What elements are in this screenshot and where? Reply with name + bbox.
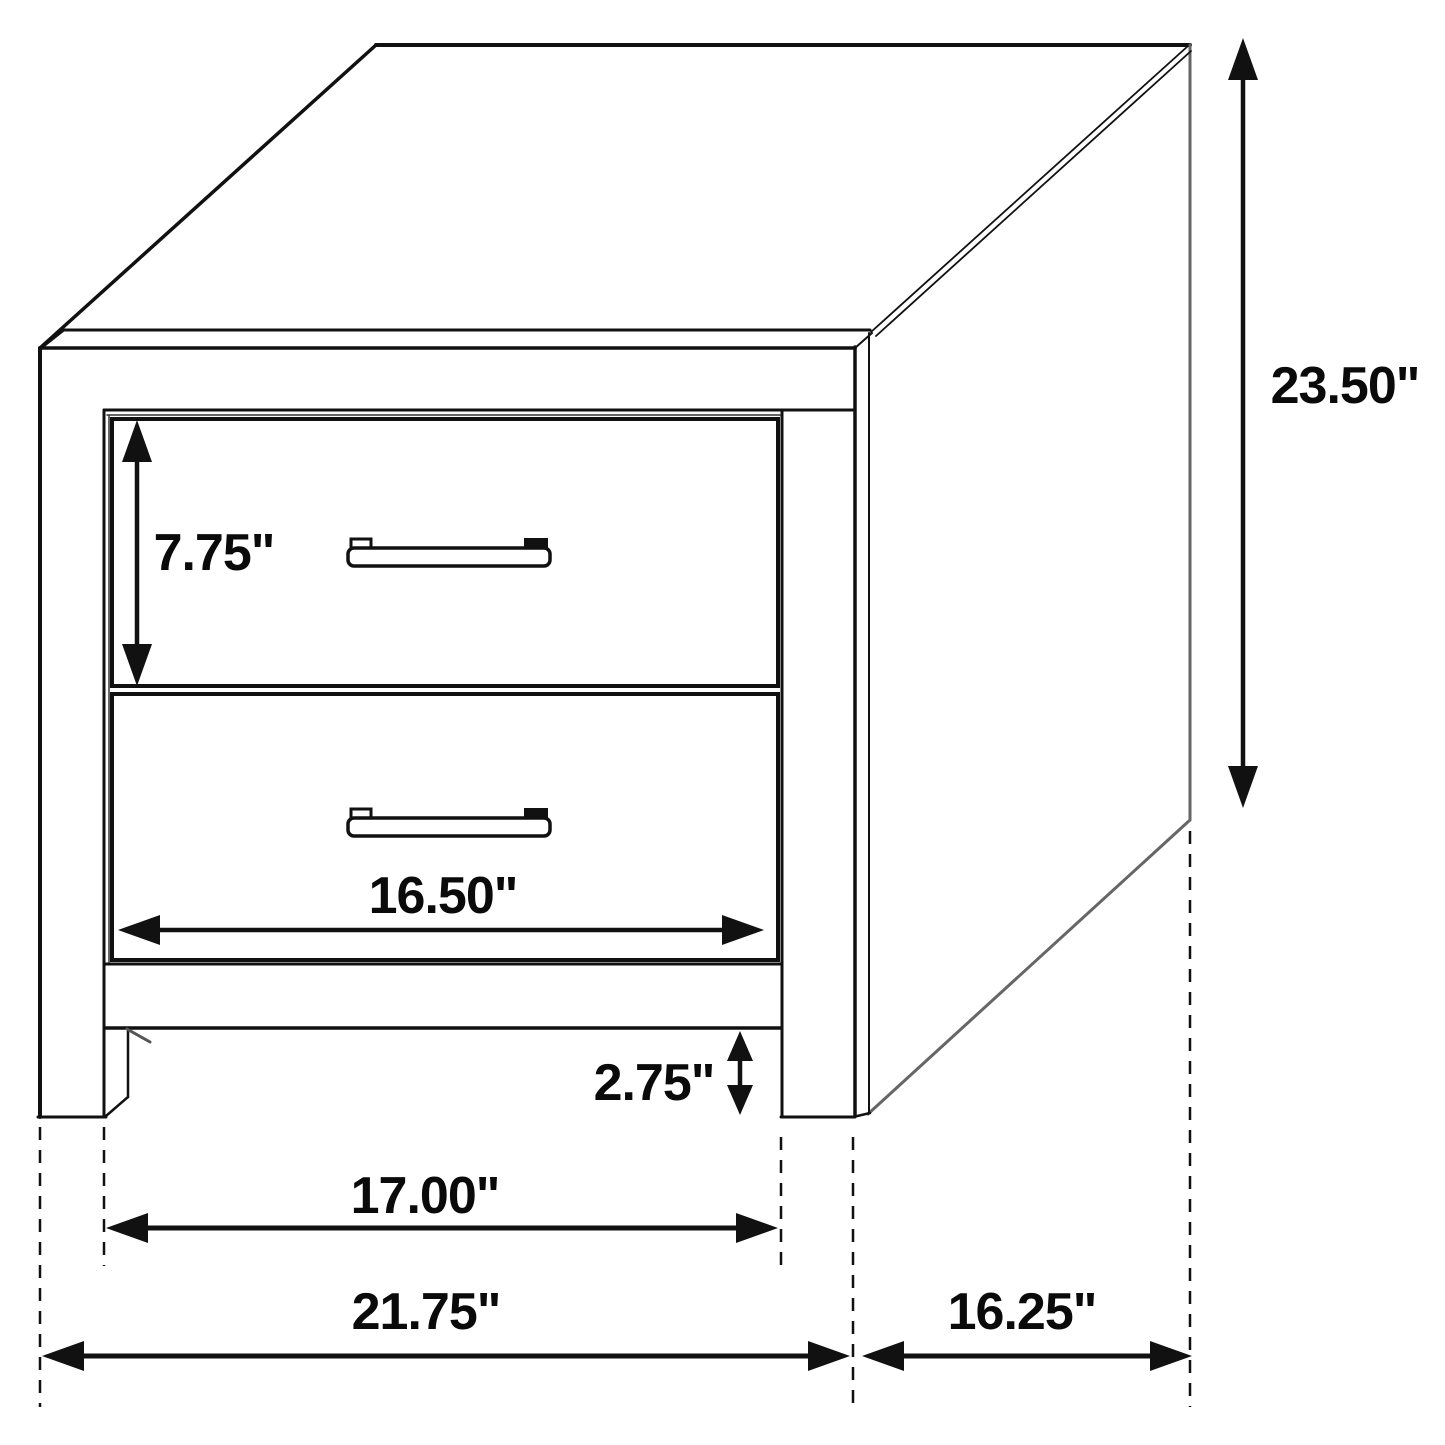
dimension-label-base-clearance: 2.75" bbox=[594, 1057, 715, 1109]
arrowhead-left bbox=[862, 1341, 904, 1371]
arrowhead-right bbox=[1150, 1341, 1192, 1371]
dimension-label-overall-width: 21.75" bbox=[352, 1286, 501, 1338]
edge-left-leg-shadow bbox=[127, 1029, 150, 1042]
dimension-label-overall-depth: 16.25" bbox=[948, 1286, 1097, 1338]
overall-width-arrow bbox=[42, 1341, 850, 1371]
arrowhead-right bbox=[736, 1213, 778, 1243]
edge-top-left-bevel bbox=[40, 330, 64, 349]
handle-bar bbox=[348, 818, 550, 836]
arrowhead-up bbox=[727, 1031, 753, 1061]
edge-top-left-slant bbox=[40, 45, 376, 348]
arrowhead-left bbox=[42, 1341, 84, 1371]
dimension-label-inner-width: 17.00" bbox=[351, 1170, 500, 1222]
arrowhead-right bbox=[808, 1341, 850, 1371]
handle-bar bbox=[348, 548, 550, 566]
dimension-label-drawer-width: 16.50" bbox=[369, 870, 518, 922]
edge-left-leg-inner-diagonal bbox=[106, 1097, 128, 1116]
overall-depth-arrow bbox=[862, 1341, 1192, 1371]
arrowhead-up bbox=[1228, 38, 1258, 80]
dimension-label-drawer-height: 7.75" bbox=[154, 527, 275, 579]
arrowhead-down bbox=[727, 1085, 753, 1115]
arrowhead-left bbox=[106, 1213, 148, 1243]
edge-top-face-right-a bbox=[871, 46, 1188, 332]
arrowhead-down bbox=[1228, 766, 1258, 808]
dimension-diagram: 7.75" 23.50" 16.50" 2.75" 17.00" 21.75" … bbox=[0, 0, 1445, 1445]
edge-top-face-right-b bbox=[876, 51, 1191, 336]
overall-height-arrow bbox=[1228, 38, 1258, 808]
nightstand-line-drawing bbox=[0, 0, 1445, 1445]
base-clearance-arrow bbox=[727, 1031, 753, 1115]
dimension-label-overall-height: 23.50" bbox=[1271, 360, 1420, 412]
edge-side-bottom-diagonal bbox=[868, 820, 1190, 1114]
